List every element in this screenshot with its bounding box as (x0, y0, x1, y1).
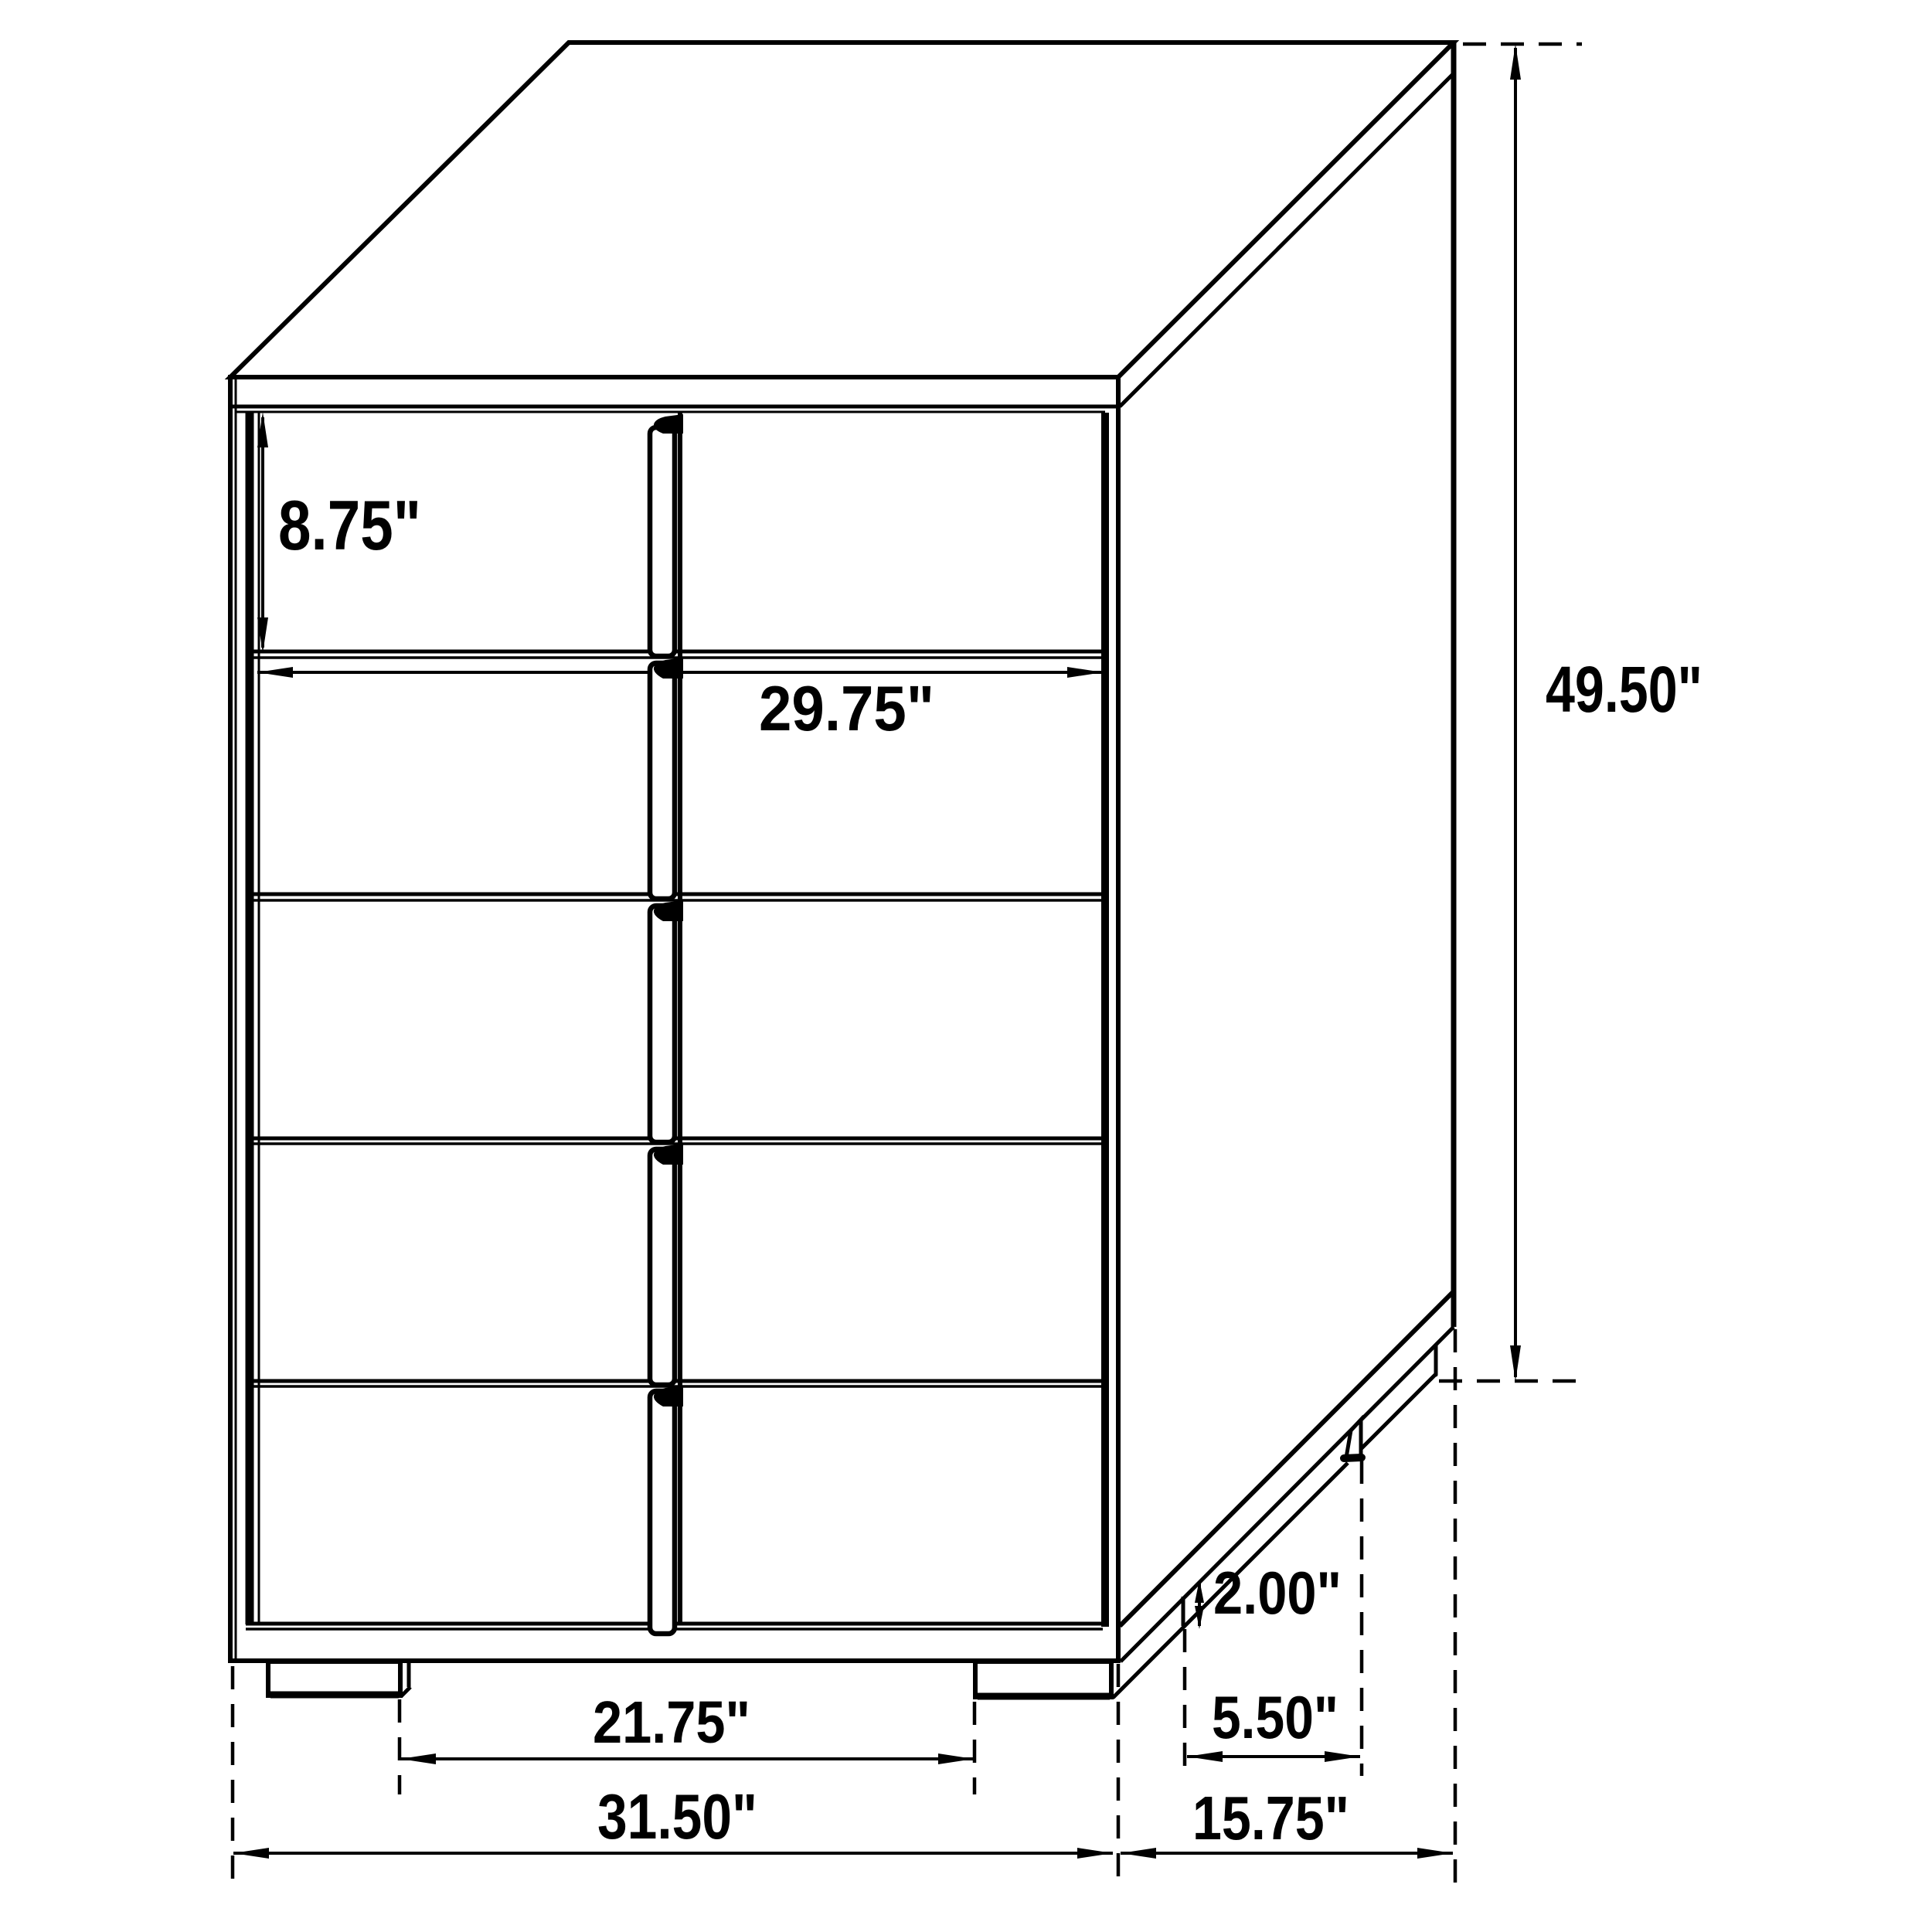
svg-text:15.75": 15.75" (1192, 1784, 1349, 1852)
svg-text:8.75": 8.75" (278, 487, 421, 565)
svg-text:31.50": 31.50" (597, 1781, 757, 1852)
svg-text:49.50": 49.50" (1546, 653, 1702, 726)
svg-text:2.00": 2.00" (1213, 1559, 1342, 1627)
svg-text:29.75": 29.75" (759, 672, 934, 744)
svg-text:5.50": 5.50" (1212, 1683, 1338, 1751)
svg-text:21.75": 21.75" (593, 1689, 750, 1756)
